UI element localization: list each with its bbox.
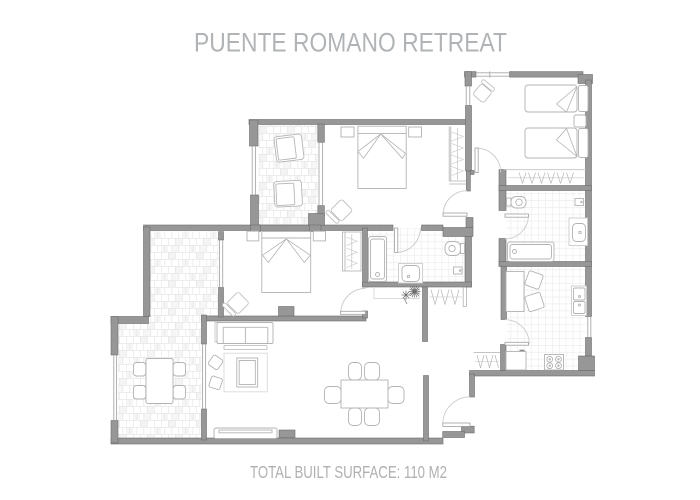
svg-text:TOTAL BUILT SURFACE: 110 M2: TOTAL BUILT SURFACE: 110 M2 bbox=[250, 462, 447, 482]
svg-text:PUENTE ROMANO RETREAT: PUENTE ROMANO RETREAT bbox=[194, 28, 507, 58]
